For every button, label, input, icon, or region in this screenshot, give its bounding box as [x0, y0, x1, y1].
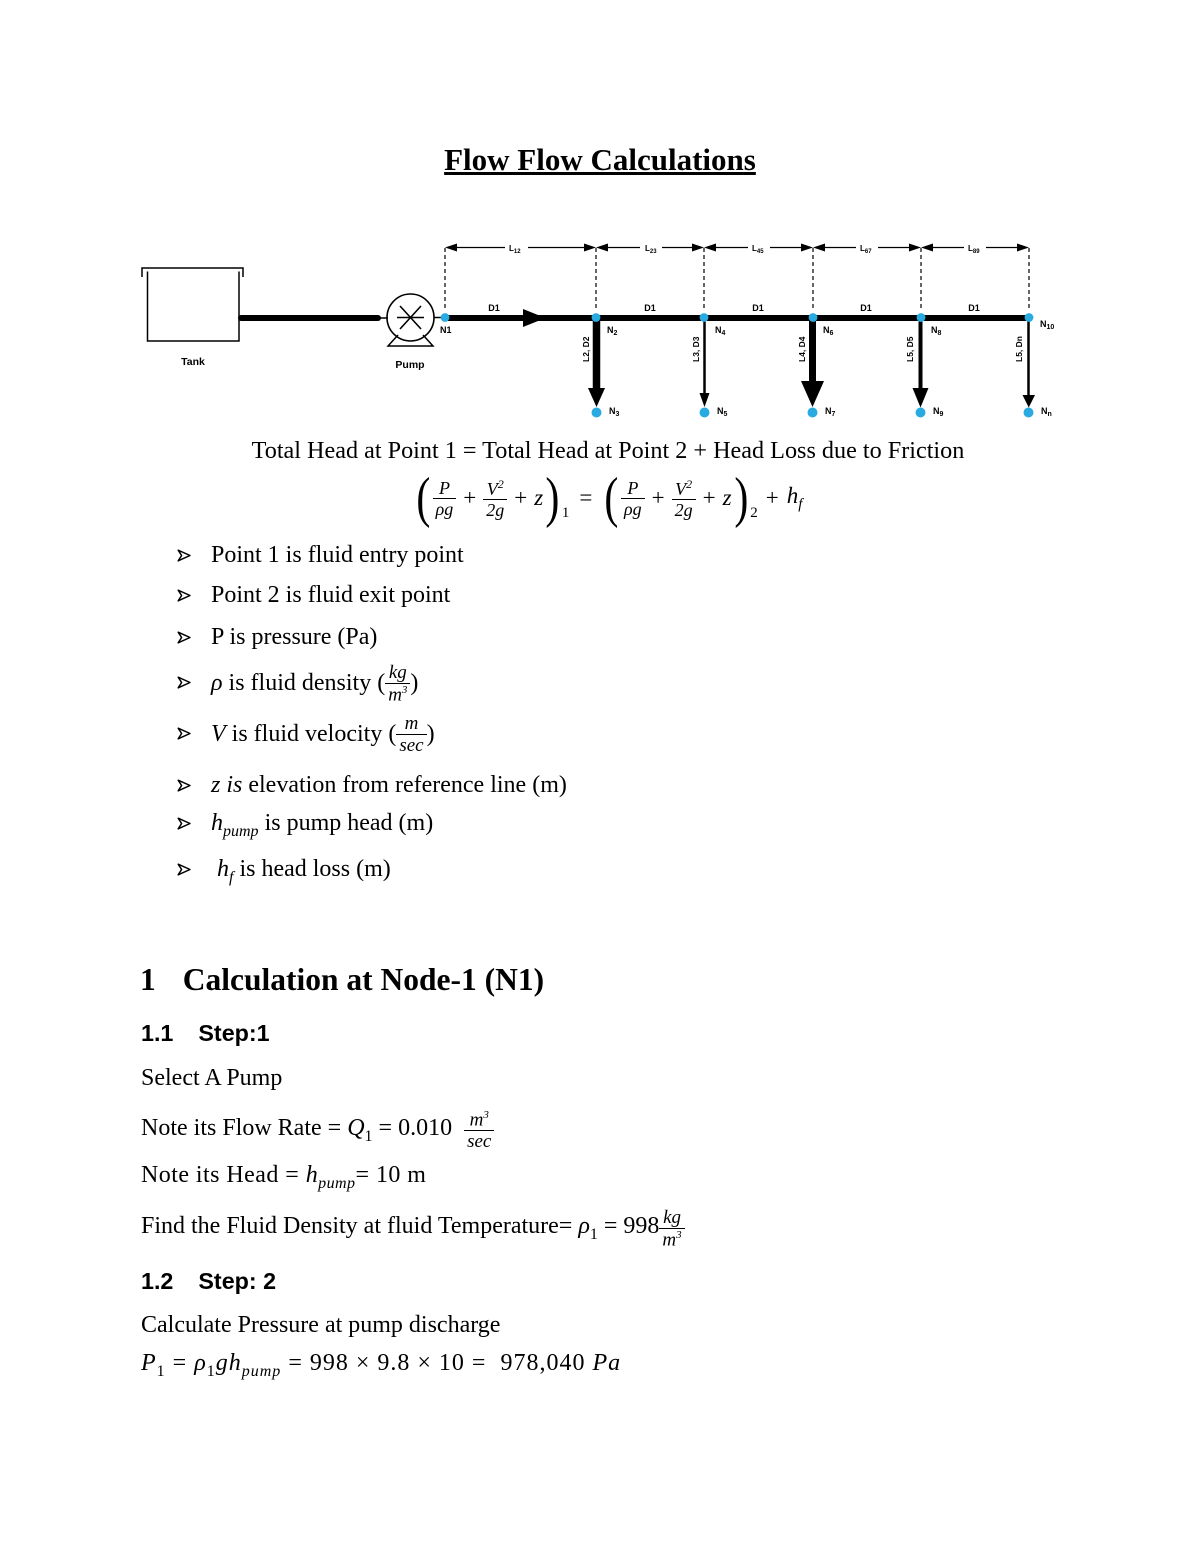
svg-text:L23: L23 [645, 244, 657, 255]
svg-text:N7: N7 [825, 406, 836, 418]
svg-text:L3, D3: L3, D3 [691, 336, 701, 362]
svg-text:Tank: Tank [181, 356, 205, 368]
svg-text:D1: D1 [968, 303, 980, 313]
svg-text:L5, Dn: L5, Dn [1014, 336, 1024, 362]
svg-text:D1: D1 [488, 303, 500, 313]
svg-text:N8: N8 [931, 325, 942, 337]
svg-text:N1: N1 [440, 325, 452, 335]
svg-text:N4: N4 [715, 325, 726, 337]
svg-text:Pump: Pump [395, 359, 424, 371]
svg-text:N2: N2 [607, 325, 618, 337]
svg-text:N9: N9 [933, 406, 944, 418]
svg-text:Nn: Nn [1041, 406, 1052, 418]
svg-text:D1: D1 [644, 303, 656, 313]
svg-text:N5: N5 [717, 406, 728, 418]
svg-text:D1: D1 [752, 303, 764, 313]
svg-text:N10: N10 [1040, 319, 1054, 331]
svg-text:L12: L12 [509, 244, 521, 255]
svg-text:N6: N6 [823, 325, 834, 337]
svg-text:N3: N3 [609, 406, 620, 418]
svg-text:L5, D5: L5, D5 [905, 336, 915, 362]
svg-text:L67: L67 [860, 244, 872, 255]
svg-text:L45: L45 [752, 244, 764, 255]
svg-text:L4, D4: L4, D4 [797, 336, 807, 362]
svg-text:D1: D1 [860, 303, 872, 313]
svg-text:L2, D2: L2, D2 [581, 336, 591, 362]
svg-text:L89: L89 [968, 244, 980, 255]
